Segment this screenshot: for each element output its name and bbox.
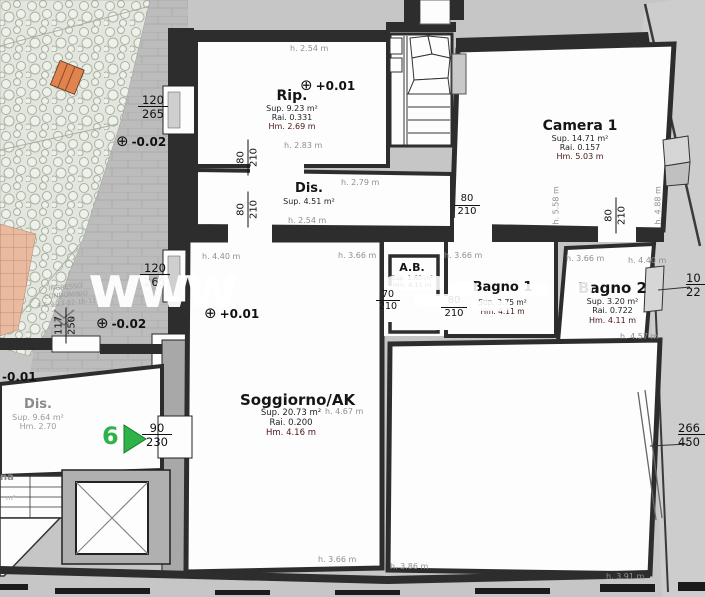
elevation-value: -0.02: [132, 135, 167, 149]
dim-den: 22: [686, 284, 705, 298]
dim-den: 210: [454, 205, 480, 218]
door-dim-80-210: 80 210: [605, 198, 628, 234]
elevation-marker: -0.01: [2, 370, 37, 384]
dim-num: 120: [142, 93, 164, 107]
room-label-camera1: Camera 1 Sup. 14.71 m² Rai. 0.157 Hm. 5.…: [525, 118, 635, 162]
height-dim: h. 2.54 m: [288, 216, 326, 225]
dim-den: 210: [247, 140, 260, 176]
window-dim-10-22: 10 22: [686, 272, 705, 298]
height-dim: h. 3.66 m: [318, 555, 356, 564]
dim-den: 210: [615, 198, 628, 234]
window-dim-120-265: 120 265: [138, 94, 168, 120]
room-name: Dis.: [273, 182, 345, 197]
room-rai: Rai. 0.157: [525, 143, 635, 152]
watermark-blob: [414, 294, 460, 306]
dim-num: 117: [54, 316, 65, 335]
height-dim: h. 3.66 m: [444, 251, 482, 260]
door-dim-80-210: 80 210: [237, 140, 260, 176]
door-opening: [454, 218, 492, 244]
room-hm: Hm. 5.03 m: [525, 152, 635, 161]
dim-num: 266: [678, 421, 700, 435]
dim-num: 80: [604, 209, 615, 222]
door-dim-117-250: 117 250: [55, 308, 78, 344]
height-dim: h. 3.66 m: [566, 254, 604, 263]
room-hm: Hm. 4.11 m: [570, 316, 655, 325]
dim-den: 210: [376, 300, 400, 312]
camera1-right-niche: [663, 136, 690, 166]
room-hm: Hm. 4.16 m: [240, 429, 342, 439]
dim-num: 80: [236, 203, 247, 216]
watermark-blob: [576, 282, 592, 296]
entry-wall: [0, 338, 52, 350]
height-dim: h. 3.86 m: [390, 562, 428, 571]
room-label-rip: Rip. Sup. 9.23 m² Rai. 0.331 Hm. 2.69 m: [252, 88, 332, 132]
room-label-dis-top: Dis. Sup. 4.51 m²: [273, 182, 345, 206]
unit-number: 6: [102, 424, 119, 448]
height-dim: h. 2.54 m: [290, 44, 328, 53]
watermark-blob: [386, 276, 444, 290]
door-dim-80-210: 80 210: [454, 194, 480, 217]
top-wall-stub: [404, 0, 420, 22]
entry-wall: [100, 344, 162, 354]
dim-num: 80: [461, 193, 474, 204]
dim-num: 90: [150, 421, 165, 435]
height-dim: h. 2.83 m: [284, 141, 322, 150]
room-sup: Sup. 3.20 m²: [570, 297, 655, 306]
elevation-symbol-icon: ⊕: [116, 134, 129, 149]
room-sup: Sup. 9.23 m²: [252, 104, 332, 113]
room-label-dis-left: Dis. Sup. 9.64 m² Hm. 2.70: [2, 398, 74, 431]
dim-num: 10: [686, 271, 701, 285]
height-dim: h. 4.40 m: [628, 256, 666, 265]
camera1-right-niche: [665, 162, 690, 186]
elevation-symbol-icon: ⊕: [300, 78, 313, 93]
dim-den: 210: [247, 192, 260, 228]
room-sup: Sup. 9.64 m²: [2, 413, 74, 422]
floor-plan: Rip. Sup. 9.23 m² Rai. 0.331 Hm. 2.69 m …: [0, 0, 705, 597]
dim-num: 70: [382, 289, 394, 300]
room-hm: Hm. 2.70: [2, 422, 74, 431]
top-opening: [420, 0, 450, 24]
elevation-value: -0.01: [2, 370, 37, 384]
height-dim: h. 2.79 m: [341, 178, 379, 187]
window-sill: [168, 92, 180, 128]
stair-pocket: [452, 54, 466, 94]
room-name: A.B.: [386, 262, 438, 275]
room-name: Camera 1: [525, 118, 635, 134]
height-dim-vertical: h. 4.88 m: [654, 169, 663, 225]
room-rai: Rai. 0.331: [252, 113, 332, 122]
window-dim-266-450: 266 450: [678, 422, 705, 448]
height-dim: h. 4.57 m: [620, 332, 658, 341]
room-sup: Sup. 4.51 m²: [273, 197, 345, 206]
dim-den: 230: [142, 434, 172, 448]
height-dim-vertical: h. 5.58 m: [552, 169, 561, 225]
door-dim-80-210: 80 210: [237, 192, 260, 228]
room-name: Dis.: [2, 398, 74, 413]
dim-den: 250: [65, 308, 78, 344]
room-sup: Sup. 14.71 m²: [525, 134, 635, 143]
partial-room-fragment: m²: [6, 494, 16, 502]
height-dim: h. 3.66 m: [338, 251, 376, 260]
door-dim-70-210: 70 210: [376, 290, 400, 312]
top-wall-stub: [450, 0, 464, 20]
door-dim-90-230: 90 230: [142, 422, 172, 448]
dim-den: 210: [441, 307, 467, 320]
dim-den: 450: [678, 434, 705, 448]
room-hm: Hm. 2.69 m: [252, 122, 332, 131]
watermark-blob: [448, 282, 478, 295]
partial-room-name: na: [0, 472, 14, 483]
watermark: www: [88, 258, 234, 316]
dim-den: 265: [138, 106, 168, 120]
dim-num: 80: [236, 151, 247, 164]
elevation-marker: ⊕ +0.01: [300, 78, 355, 93]
room-rai: Rai. 0.722: [570, 306, 655, 315]
elevation-marker: ⊕ -0.02: [116, 134, 166, 149]
height-dim: h. 3.91 m: [606, 572, 644, 581]
watermark-blob: [520, 284, 550, 296]
elevation-value: +0.01: [316, 79, 356, 93]
room-bottom-right: [388, 340, 660, 574]
watermark-blob: [470, 301, 510, 311]
height-dim: h. 4.67 m: [325, 407, 363, 416]
